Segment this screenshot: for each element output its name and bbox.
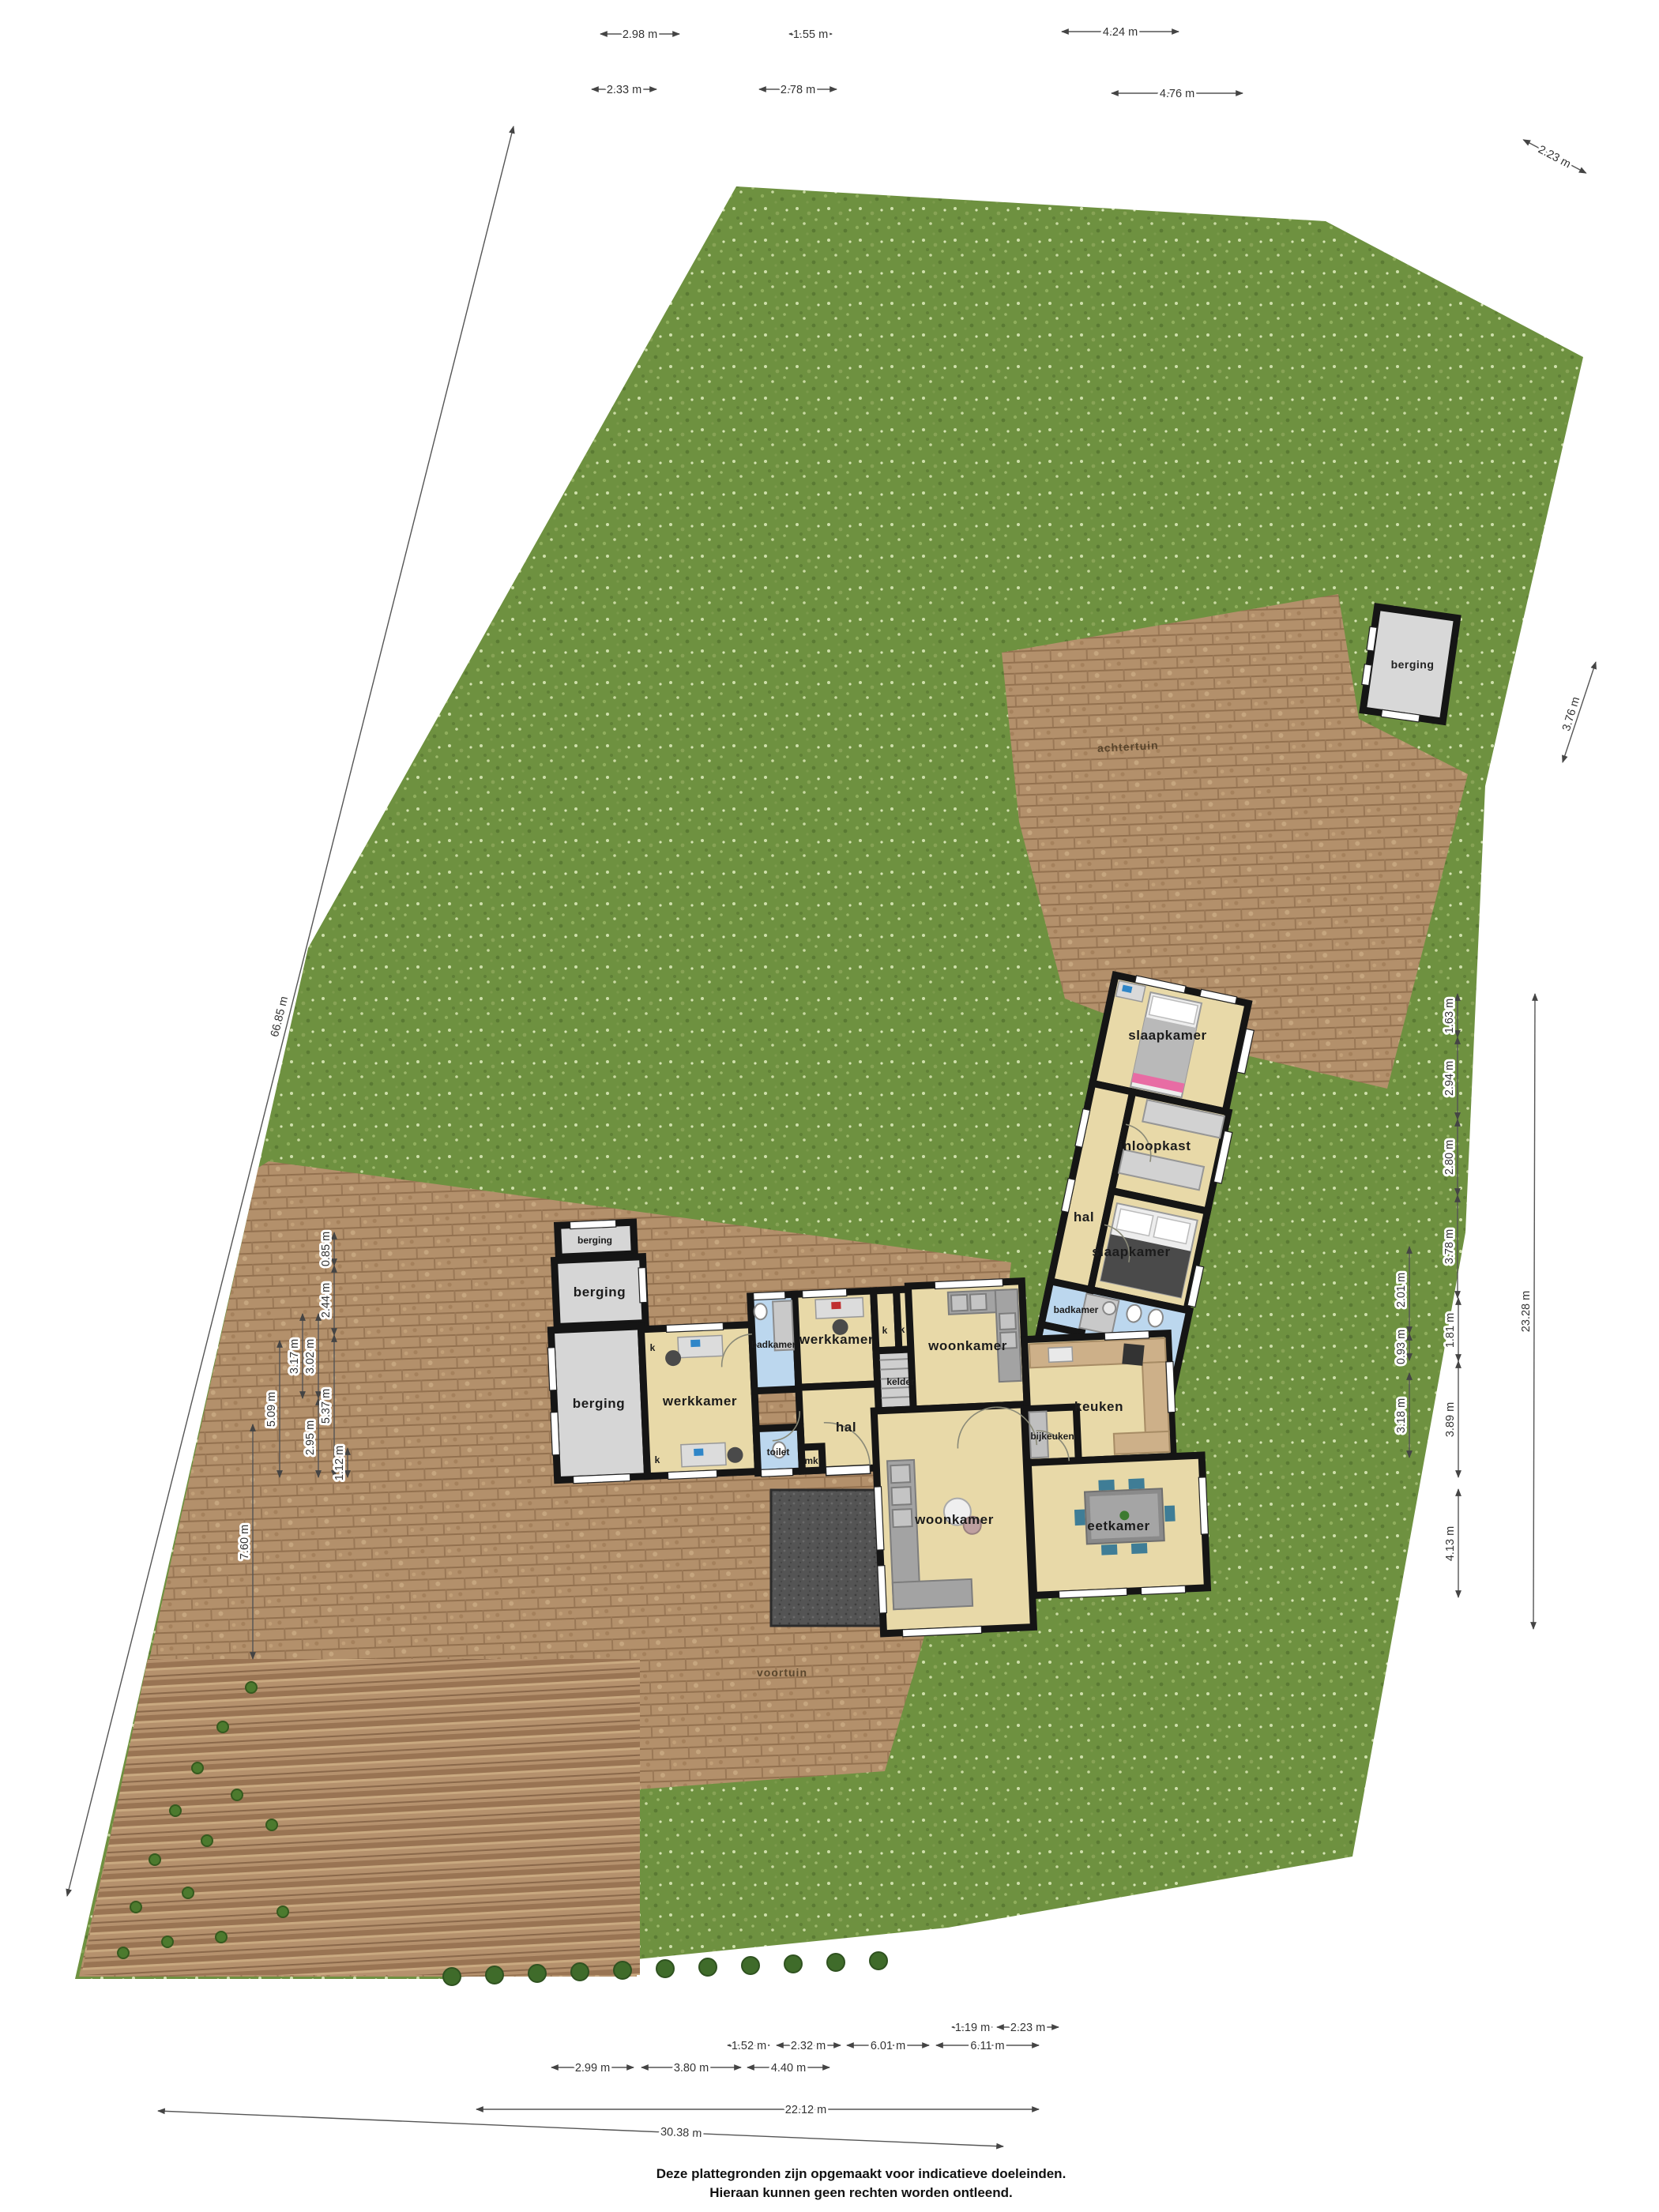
dim-bottom-3: 2.32 m — [777, 2040, 841, 2052]
k3-label: k — [882, 1325, 888, 1336]
svg-text:6.01 m: 6.01 m — [871, 2040, 905, 2052]
dim-bottom-0: 1.19 m — [952, 2022, 992, 2034]
dim-bottom-5: 6.11 m — [936, 2040, 1039, 2052]
disclaimer-line-2: Hieraan kunnen geen rechten worden ontle… — [709, 2185, 1013, 2200]
svg-text:5.37 m: 5.37 m — [320, 1389, 333, 1424]
berging-small-label: berging — [577, 1235, 612, 1246]
eetkamer-label: eetkamer — [1087, 1518, 1149, 1533]
floorplan-page: achtertuin voortuin berging — [0, 0, 1659, 2212]
dim-top-5: 4.76 m — [1112, 88, 1243, 100]
svg-text:1.63 m: 1.63 m — [1443, 999, 1456, 1033]
dim-bottom-4: 6.01 m — [847, 2040, 929, 2052]
svg-text:2.33 m: 2.33 m — [607, 84, 641, 96]
svg-text:4.13 m: 4.13 m — [1444, 1526, 1457, 1561]
svg-text:1.55 m: 1.55 m — [793, 28, 828, 41]
svg-text:22.12 m: 22.12 m — [785, 2104, 826, 2116]
stove — [1122, 1343, 1144, 1365]
dim-top-4: 2.78 m — [759, 84, 837, 96]
svg-text:2.32 m: 2.32 m — [791, 2040, 826, 2052]
svg-text:6.11 m: 6.11 m — [970, 2040, 1004, 2052]
dim-right-7: 0.93 m — [1395, 1330, 1409, 1364]
dim-top-6: 2.23 m — [1520, 135, 1589, 179]
svg-text:2.94 m: 2.94 m — [1443, 1061, 1456, 1096]
svg-text:23.28 m: 23.28 m — [1520, 1291, 1533, 1332]
svg-text:2.99 m: 2.99 m — [575, 2062, 610, 2075]
dim-bottom-6: 2.99 m — [551, 2062, 634, 2075]
svg-text:2.80 m: 2.80 m — [1443, 1140, 1456, 1175]
kelder-label: kelder — [886, 1376, 915, 1387]
dim-left-9: 1.12 m — [333, 1446, 348, 1480]
svg-text:1.19 m: 1.19 m — [955, 2022, 990, 2034]
badkamer-left-label: badkamer — [751, 1339, 796, 1350]
toilet-main-label: toilet — [767, 1446, 790, 1458]
dim-bottom-2: 1.52 m — [728, 2040, 769, 2052]
svg-text:2.44 m: 2.44 m — [320, 1283, 333, 1318]
woonkamer-large-label: woonkamer — [914, 1512, 994, 1527]
berging-large-label: berging — [573, 1396, 626, 1411]
dim-left-6: 0.85 m — [320, 1232, 334, 1266]
dim-bottom-8: 4.40 m — [747, 2062, 829, 2075]
svg-text:2.01 m: 2.01 m — [1395, 1273, 1408, 1307]
badkamer-wing-west-label: badkamer — [1054, 1304, 1099, 1315]
svg-text:1.52 m: 1.52 m — [732, 2040, 766, 2052]
svg-text:1.12 m: 1.12 m — [333, 1446, 346, 1480]
hal-wing-label: hal — [1074, 1209, 1094, 1224]
svg-text:3.78 m: 3.78 m — [1443, 1229, 1456, 1264]
svg-text:2.23 m: 2.23 m — [1536, 143, 1573, 171]
svg-text:2.95 m: 2.95 m — [304, 1420, 317, 1455]
svg-text:3.89 m: 3.89 m — [1444, 1402, 1457, 1437]
dim-bottom-9: 22.12 m — [476, 2104, 1039, 2116]
k2-label: k — [655, 1454, 660, 1465]
svg-text:4.40 m: 4.40 m — [771, 2062, 806, 2075]
dim-top-1: 1.55 m — [789, 28, 832, 41]
disclaimer-line-1: Deze plattegronden zijn opgemaakt voor i… — [656, 2166, 1066, 2181]
svg-text:3.02 m: 3.02 m — [304, 1339, 317, 1374]
dim-right-11: 4.13 m — [1444, 1489, 1458, 1597]
terrace — [771, 1490, 883, 1626]
slaapkamer-north-label: slaapkamer — [1128, 1028, 1207, 1043]
svg-text:66.85 m: 66.85 m — [269, 995, 291, 1039]
svg-text:4.24 m: 4.24 m — [1103, 26, 1138, 39]
svg-text:30.38 m: 30.38 m — [660, 2126, 702, 2140]
svg-text:2.23 m: 2.23 m — [1010, 2022, 1045, 2034]
keuken-label: keuken — [1074, 1399, 1123, 1414]
werkkamer-left-label: werkkamer — [662, 1394, 737, 1409]
plot: achtertuin voortuin — [75, 186, 1583, 1985]
svg-text:4.76 m: 4.76 m — [1160, 88, 1194, 100]
soil-field-rows — [81, 1659, 640, 1975]
dim-top-0: 2.98 m — [600, 28, 679, 41]
svg-text:2.78 m: 2.78 m — [781, 84, 815, 96]
svg-text:0.93 m: 0.93 m — [1395, 1330, 1408, 1364]
dim-bottom-7: 3.80 m — [641, 2062, 741, 2075]
dim-right-0: 3.76 m — [1560, 662, 1596, 762]
shed-berging-label: berging — [1391, 658, 1435, 671]
toilet-left-fixture — [754, 1303, 767, 1320]
dim-top-2: 4.24 m — [1062, 26, 1179, 39]
dim-bottom-10: 30.38 m — [158, 2111, 1003, 2146]
svg-text:5.09 m: 5.09 m — [265, 1392, 278, 1427]
voortuin-label: voortuin — [757, 1666, 807, 1679]
k4-label: k — [900, 1324, 905, 1335]
berging-mid-label: berging — [574, 1285, 626, 1300]
svg-text:3.18 m: 3.18 m — [1395, 1398, 1408, 1433]
dim-right-1: 23.28 m — [1520, 994, 1535, 1629]
woonkamer-top-label: woonkamer — [927, 1338, 1007, 1353]
kitchen-sink — [1048, 1347, 1073, 1362]
hal-main-label: hal — [836, 1420, 856, 1435]
front-door — [826, 1465, 870, 1475]
slaapkamer-south-label: slaapkamer — [1092, 1244, 1171, 1259]
mk-label: mk — [804, 1455, 818, 1466]
bijkeuken-label: bijkeuken — [1030, 1431, 1074, 1442]
svg-text:3.76 m: 3.76 m — [1560, 695, 1582, 732]
svg-text:0.85 m: 0.85 m — [320, 1232, 333, 1266]
werkkamer-top-label: werkkamer — [799, 1332, 874, 1347]
k1-label: k — [650, 1342, 656, 1353]
svg-text:3.17 m: 3.17 m — [288, 1339, 301, 1374]
svg-text:2.98 m: 2.98 m — [623, 28, 657, 41]
svg-text:3.80 m: 3.80 m — [674, 2062, 709, 2075]
floorplan-canvas: achtertuin voortuin berging — [0, 0, 1659, 2212]
dim-right-2: 1.63 m — [1443, 994, 1458, 1037]
dim-bottom-1: 2.23 m — [997, 2022, 1059, 2034]
svg-text:7.60 m: 7.60 m — [239, 1525, 251, 1559]
inloopkast-label: inloopkast — [1119, 1138, 1191, 1153]
dim-right-10: 3.89 m — [1444, 1361, 1458, 1477]
svg-text:1.81 m: 1.81 m — [1444, 1313, 1457, 1348]
dim-top-3: 2.33 m — [592, 84, 656, 96]
